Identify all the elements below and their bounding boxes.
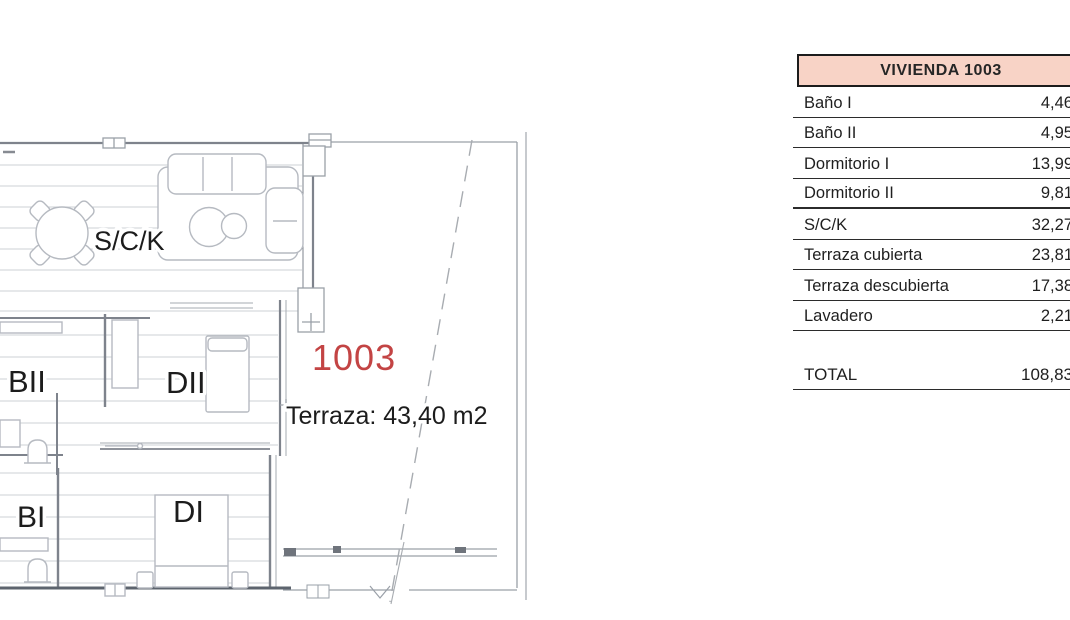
room-label-dorm1: DI <box>173 494 204 529</box>
vanity-bath2 <box>0 322 62 333</box>
row-value: 23,81 <box>1032 246 1070 265</box>
wardrobe <box>112 320 138 388</box>
side-table <box>222 214 247 239</box>
room-label-sck: S/C/K <box>94 226 165 256</box>
table-row: Dormitorio II 9,81 <box>793 179 1070 210</box>
table-row: Dormitorio I 13,99 <box>793 148 1070 179</box>
row-value: 13,99 <box>1032 155 1070 174</box>
row-label: Baño II <box>804 124 856 143</box>
bath1-fixtures <box>0 538 51 582</box>
room-label-banio2: BII <box>8 364 46 399</box>
total-label: TOTAL <box>804 365 857 385</box>
sck-furniture <box>28 154 303 267</box>
area-table-title: VIVIENDA 1003 <box>797 54 1070 87</box>
row-value: 4,46 <box>1041 94 1070 113</box>
terrace-area-label: Terraza: 43,40 m2 <box>286 402 488 430</box>
room-label-banio1: BI <box>17 501 45 534</box>
table-row: Baño I 4,46 <box>793 87 1070 118</box>
total-value: 108,83 <box>1021 365 1070 385</box>
plot-boundary-solid-line <box>391 542 404 604</box>
nightstand-left <box>137 572 153 588</box>
row-value: 4,95 <box>1041 124 1070 143</box>
row-value: 2,21 <box>1041 307 1070 326</box>
row-label: Dormitorio I <box>804 155 889 174</box>
pillow-dorm2 <box>208 338 247 351</box>
table-spacer <box>793 331 1070 359</box>
row-label: Baño I <box>804 94 852 113</box>
dining-table <box>36 207 88 259</box>
total-row: TOTAL 108,83 <box>793 359 1070 390</box>
row-value: 17,38 <box>1032 277 1070 296</box>
sofa-back <box>168 154 266 194</box>
row-label: Terraza cubierta <box>804 246 922 265</box>
row-label: Terraza descubierta <box>804 277 949 296</box>
unit-number-label: 1003 <box>312 337 396 378</box>
sink-bath2 <box>0 420 20 447</box>
page: S/C/K BII DII BI DI 1003 Terraza: 43,40 … <box>0 0 1070 620</box>
area-table: VIVIENDA 1003 Baño I 4,46 Baño II 4,95 D… <box>793 54 1070 390</box>
row-label: Dormitorio II <box>804 184 894 203</box>
table-row: Lavadero 2,21 <box>793 301 1070 332</box>
row-value: 32,27 <box>1032 216 1070 235</box>
vanity-bath1 <box>0 538 48 551</box>
plot-boundary-dashed-line <box>390 140 472 602</box>
floor-plan: S/C/K BII DII BI DI 1003 Terraza: 43,40 … <box>0 0 560 620</box>
table-row: Terraza descubierta 17,38 <box>793 270 1070 301</box>
table-row: Baño II 4,95 <box>793 118 1070 149</box>
room-label-dorm2: DII <box>166 365 206 400</box>
row-label: S/C/K <box>804 216 847 235</box>
nightstand-right <box>232 572 248 588</box>
toilet-bath2 <box>24 440 51 463</box>
toilet-bath1 <box>24 559 51 582</box>
row-label: Lavadero <box>804 307 873 326</box>
row-value: 9,81 <box>1041 184 1070 203</box>
table-row: S/C/K 32,27 <box>793 209 1070 240</box>
table-row: Terraza cubierta 23,81 <box>793 240 1070 271</box>
